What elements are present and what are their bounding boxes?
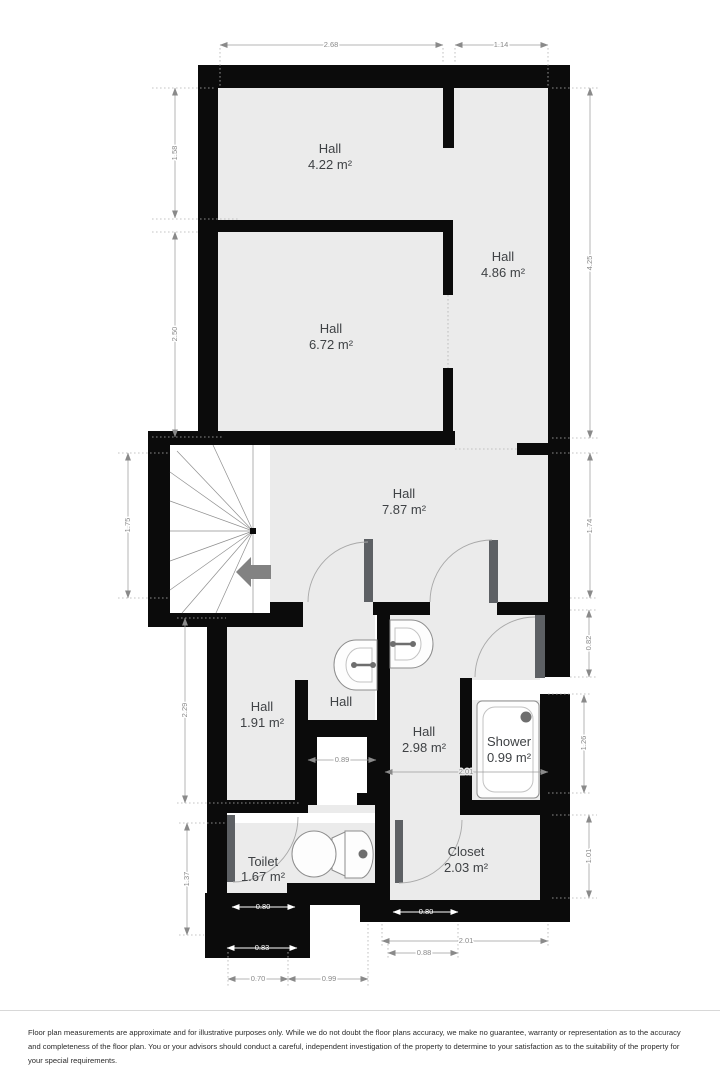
stairs xyxy=(170,445,271,613)
dim-label: 0.70 xyxy=(251,974,266,983)
room-area: 0.99 m² xyxy=(487,750,532,765)
dim-label: 4.25 xyxy=(585,256,594,271)
dim-label: 0.80 xyxy=(419,907,434,916)
dim-label: 2.01 xyxy=(459,767,474,776)
dim-label: 0.89 xyxy=(335,755,350,764)
room-name: Hall xyxy=(320,321,343,336)
room-area: 2.03 m² xyxy=(444,860,489,875)
room-area: 6.72 m² xyxy=(309,337,354,352)
sink-icon xyxy=(334,640,377,690)
room-area: 4.22 m² xyxy=(308,157,353,172)
dim-label: 1.01 xyxy=(584,849,593,864)
room-name: Hall xyxy=(413,724,436,739)
dim-label: 2.50 xyxy=(170,327,179,342)
sink-icon xyxy=(390,620,433,668)
stair-newel xyxy=(250,528,256,534)
room-name: Hall xyxy=(251,699,274,714)
room-name: Toilet xyxy=(248,854,279,869)
room-name: Shower xyxy=(487,734,532,749)
dim-label: 0.80 xyxy=(256,902,271,911)
room-name: Hall xyxy=(492,249,515,264)
drain-icon xyxy=(521,712,532,723)
dim-label: 0.88 xyxy=(417,948,432,957)
dim-label: 2.29 xyxy=(180,703,189,718)
floor-plan: 2.68 1.14 1.58 2.50 1.75 2.29 1.37 xyxy=(0,0,720,1010)
room-name: Closet xyxy=(448,844,485,859)
room-area: 1.67 m² xyxy=(241,869,286,884)
dim-label: 1.74 xyxy=(585,519,594,534)
footer-disclaimer: Floor plan measurements are approximate … xyxy=(0,1010,720,1068)
dim-label: 0.83 xyxy=(255,943,270,952)
room-name: Hall xyxy=(330,694,353,709)
dim-label: 1.75 xyxy=(123,518,132,533)
room-area: 2.98 m² xyxy=(402,740,447,755)
dim-label: 2.68 xyxy=(324,40,339,49)
dim-label: 0.82 xyxy=(584,636,593,651)
room-name: Hall xyxy=(393,486,416,501)
dim-label: 1.14 xyxy=(494,40,509,49)
dim-label: 1.58 xyxy=(170,146,179,161)
dim-label: 1.37 xyxy=(182,872,191,887)
dim-label: 2.01 xyxy=(459,936,474,945)
room-area: 7.87 m² xyxy=(382,502,427,517)
dim-label: 1.26 xyxy=(579,736,588,751)
room-area: 1.91 m² xyxy=(240,715,285,730)
room-name: Hall xyxy=(319,141,342,156)
dim-label: 0.99 xyxy=(322,974,337,983)
room-area: 4.86 m² xyxy=(481,265,526,280)
floor-plan-page: 2.68 1.14 1.58 2.50 1.75 2.29 1.37 xyxy=(0,0,720,1080)
